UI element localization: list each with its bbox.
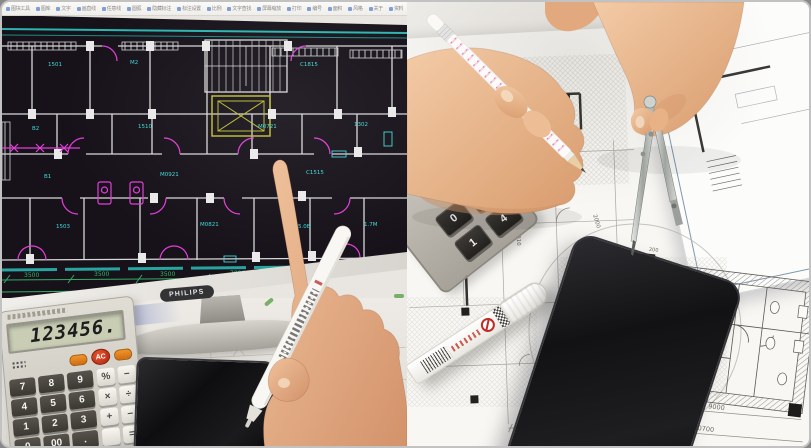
calculator-solar-dots xyxy=(11,360,26,370)
svg-text:1510: 1510 xyxy=(138,124,152,130)
calculator-operator-key: % xyxy=(96,367,115,386)
tool-icon xyxy=(207,7,211,11)
calculator-number-key: 4 xyxy=(11,397,38,417)
photo-collage: 图块工具图库文字画直线任意线圆弧隐藏标注标注设置比例文字查找屏幕缩放打印编号面积… xyxy=(0,0,811,448)
calculator: 123456. AC 789456123000. %−×÷+−= xyxy=(2,295,146,448)
svg-text:C1815: C1815 xyxy=(300,62,318,68)
calculator-ac-key: AC xyxy=(91,348,111,366)
tool-icon xyxy=(102,7,106,11)
left-photo-cad-workstation: 图块工具图库文字画直线任意线圆弧隐藏标注标注设置比例文字查找屏幕缩放打印编号面积… xyxy=(2,2,407,448)
tool-icon xyxy=(369,7,373,11)
calculator-number-key: 00 xyxy=(43,433,70,448)
svg-text:2000: 2000 xyxy=(591,214,601,230)
calculator-number-key: 2 xyxy=(41,413,68,433)
calculator-orange-key xyxy=(69,353,88,366)
calculator-number-key: 1 xyxy=(12,417,39,437)
tool-icon xyxy=(177,7,181,11)
leaf-reflection xyxy=(394,294,404,298)
toolbar-item: 编号 xyxy=(307,5,321,12)
toolbar-item: 屏幕缩放 xyxy=(257,5,281,12)
calculator-operator-key xyxy=(102,427,121,446)
svg-text:C1515: C1515 xyxy=(306,170,324,176)
svg-text:B1: B1 xyxy=(44,174,51,180)
smartphone xyxy=(133,357,274,448)
toolbar-item: 比例 xyxy=(207,5,221,12)
toolbar-item: 打印 xyxy=(287,5,301,12)
svg-text:1503: 1503 xyxy=(56,224,70,230)
tool-icon xyxy=(127,7,131,11)
tool-icon xyxy=(287,7,291,11)
svg-text:M0921: M0921 xyxy=(160,172,179,178)
toolbar-item: 隐藏标注 xyxy=(147,5,171,12)
calculator-number-key: 7 xyxy=(9,377,36,397)
right-photo-blueprint-work: 3400 2000 500 1910 xyxy=(407,2,811,448)
svg-text:1.7M: 1.7M xyxy=(364,222,378,228)
calculator-number-key: 3 xyxy=(70,410,97,430)
svg-text:1302: 1302 xyxy=(354,122,368,128)
toolbar-item: 画直线 xyxy=(77,5,96,12)
calculator-orange-key xyxy=(114,347,133,360)
top-right-sheet-plan xyxy=(667,29,811,194)
calculator-number-key: 0 xyxy=(14,437,41,448)
tool-icon xyxy=(56,7,60,11)
toolbar-item: 标注设置 xyxy=(177,5,201,12)
svg-text:200: 200 xyxy=(649,247,659,254)
tool-icon xyxy=(36,7,40,11)
calculator-operator-key: × xyxy=(98,387,117,406)
svg-text:B2: B2 xyxy=(32,126,39,132)
svg-text:9000: 9000 xyxy=(708,402,725,412)
svg-text:M2: M2 xyxy=(130,60,138,66)
toolbar-item: 圆弧 xyxy=(127,5,141,12)
red-prohibition-logo xyxy=(478,315,497,334)
calculator-number-key: 9 xyxy=(67,370,94,390)
toolbar-item: 面积 xyxy=(328,5,342,12)
toolbar-item: 资料 xyxy=(389,5,403,12)
cad-software-toolbar: 图块工具图库文字画直线任意线圆弧隐藏标注标注设置比例文字查找屏幕缩放打印编号面积… xyxy=(2,2,407,16)
svg-text:1501: 1501 xyxy=(48,62,62,68)
toolbar-item: 风格 xyxy=(348,5,362,12)
svg-text:3500: 3500 xyxy=(24,272,39,279)
tool-icon xyxy=(328,7,332,11)
toolbar-item: 文字查找 xyxy=(227,5,251,12)
calculator-operator-key: + xyxy=(100,407,119,426)
calculator-number-key: 5 xyxy=(40,393,67,413)
calculator-operator-key: − xyxy=(117,365,136,384)
tool-icon xyxy=(307,7,311,11)
calculator-number-key: . xyxy=(72,430,99,448)
svg-text:5.0B: 5.0B xyxy=(298,224,311,230)
svg-text:3500: 3500 xyxy=(160,271,175,278)
toolbar-item: 图块工具 xyxy=(6,5,30,12)
toolbar-item: 关于 xyxy=(369,5,383,12)
tool-icon xyxy=(6,7,10,11)
svg-text:3500: 3500 xyxy=(94,271,109,278)
tool-icon xyxy=(227,7,231,11)
tool-icon xyxy=(147,7,151,11)
svg-text:M0721: M0721 xyxy=(258,124,277,130)
calculator-number-key: 8 xyxy=(38,373,65,393)
tool-icon xyxy=(389,7,393,11)
tool-icon xyxy=(257,7,261,11)
tool-icon xyxy=(348,7,352,11)
toolbar-item: 文字 xyxy=(56,5,70,12)
tool-icon xyxy=(77,7,81,11)
toolbar-item: 任意线 xyxy=(102,5,121,12)
calculator-number-key: 6 xyxy=(68,390,95,410)
svg-text:M0821: M0821 xyxy=(200,222,219,228)
toolbar-item: 图库 xyxy=(36,5,50,12)
